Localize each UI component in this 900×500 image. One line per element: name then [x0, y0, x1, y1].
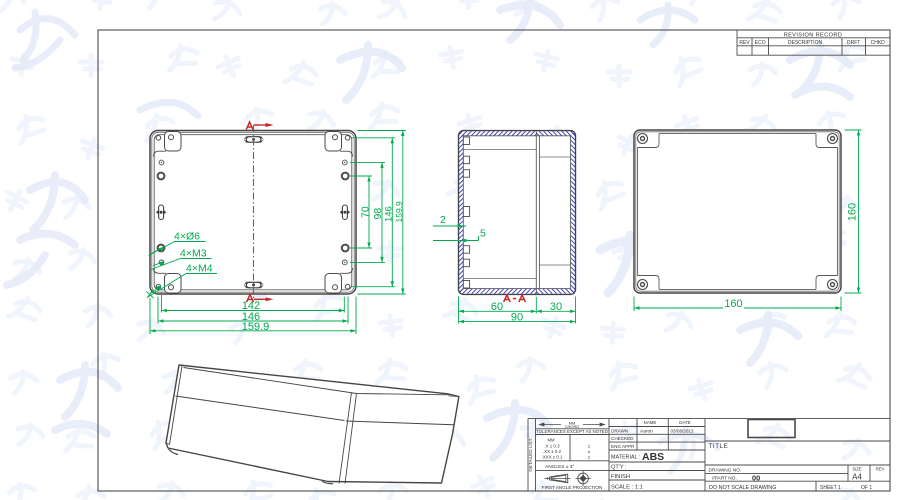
- svg-text:FIRST ANGLE PROJECTION: FIRST ANGLE PROJECTION: [542, 485, 603, 490]
- svg-text:QT'Y :: QT'Y :: [611, 465, 627, 471]
- svg-text:160: 160: [847, 203, 859, 221]
- svg-text:SCALE : 1:1: SCALE : 1:1: [611, 484, 643, 490]
- svg-text://PART NO.: //PART NO.: [712, 476, 737, 482]
- svg-text:A4: A4: [852, 473, 862, 482]
- svg-text:.XX ± 0.2: .XX ± 0.2: [543, 449, 562, 454]
- svg-text:Aaron: Aaron: [640, 428, 653, 434]
- svg-text:159.9: 159.9: [242, 321, 270, 333]
- svg-text:160: 160: [724, 298, 742, 310]
- svg-text:4×Ø6: 4×Ø6: [174, 231, 200, 243]
- svg-text:03/08/2013: 03/08/2013: [671, 428, 694, 433]
- svg-text:DRAWING NO.: DRAWING NO.: [709, 467, 742, 473]
- svg-text:ECO: ECO: [755, 40, 766, 46]
- svg-text:NAME: NAME: [644, 420, 657, 425]
- svg-text:DRFT: DRFT: [847, 40, 860, 46]
- svg-text:REV: REV: [739, 40, 750, 46]
- svg-text:REV: REV: [876, 467, 885, 472]
- svg-text:CHECKED: CHECKED: [611, 436, 634, 441]
- svg-text:146: 146: [384, 206, 395, 222]
- svg-text:60: 60: [491, 301, 503, 313]
- svg-text:CHKD: CHKD: [871, 40, 886, 46]
- svg-text:DO NOT SCALE DRAWING: DO NOT SCALE DRAWING: [709, 485, 776, 491]
- svg-text:30: 30: [550, 301, 562, 313]
- svg-text:DESCRIPTION: DESCRIPTION: [788, 40, 823, 46]
- svg-text:DATE: DATE: [679, 420, 690, 425]
- svg-text:SHEET 1: SHEET 1: [820, 485, 841, 491]
- svg-text:±: ±: [588, 444, 591, 449]
- svg-text:OF 1: OF 1: [861, 485, 872, 491]
- svg-text:SIZE: SIZE: [852, 467, 862, 472]
- svg-text:REVISION RECORD: REVISION RECORD: [784, 32, 843, 38]
- svg-text:90: 90: [511, 312, 523, 324]
- svg-text:ABS: ABS: [642, 451, 664, 463]
- svg-text:FINISH: FINISH: [611, 474, 630, 480]
- svg-text:ENG APPR: ENG APPR: [611, 444, 635, 449]
- svg-text:159.9: 159.9: [394, 201, 404, 223]
- svg-text:MM: MM: [548, 438, 555, 443]
- svg-text:.X ± 0.3: .X ± 0.3: [544, 444, 560, 449]
- svg-text:TITLE: TITLE: [709, 443, 729, 450]
- svg-text:±: ±: [588, 449, 591, 454]
- svg-text:MATERIAL :: MATERIAL :: [611, 455, 640, 461]
- svg-text:98: 98: [372, 208, 384, 220]
- svg-text:.XXX ± 0.1: .XXX ± 0.1: [542, 455, 564, 460]
- svg-text:5: 5: [480, 228, 486, 240]
- svg-text:DETAILED LIST: DETAILED LIST: [528, 438, 533, 471]
- svg-text:TOLERANCES EXCEPT AS NOTED: TOLERANCES EXCEPT AS NOTED: [536, 429, 608, 434]
- svg-text:2: 2: [440, 214, 446, 226]
- svg-text:70: 70: [360, 206, 372, 218]
- svg-text:±: ±: [588, 455, 591, 460]
- svg-text:4×M4: 4×M4: [186, 263, 213, 275]
- svg-text:ANGLES ± 3°: ANGLES ± 3°: [545, 464, 574, 470]
- svg-text:00: 00: [752, 474, 760, 483]
- svg-text:DRAWN: DRAWN: [611, 428, 628, 433]
- svg-text:4×M3: 4×M3: [180, 248, 207, 260]
